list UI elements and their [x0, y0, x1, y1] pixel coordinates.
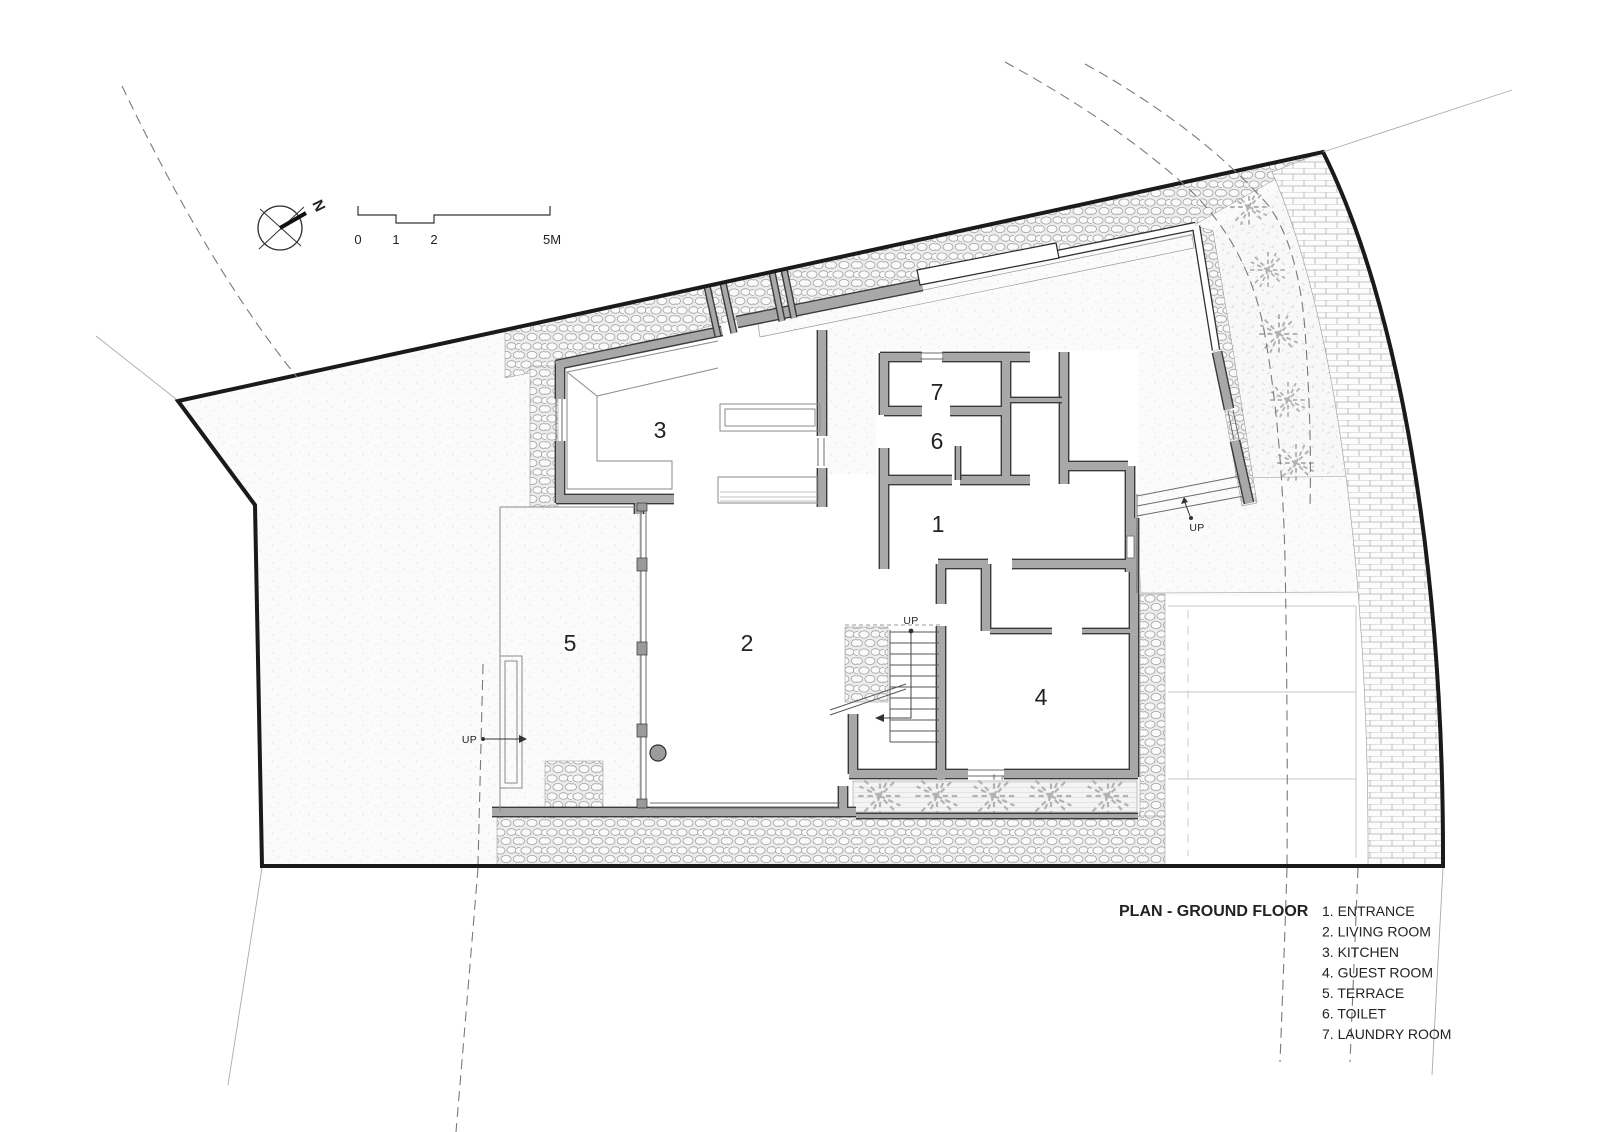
north-arrow: N	[258, 197, 328, 250]
legend-item-terrace: 5. TERRACE	[1322, 985, 1404, 1001]
room-label-living-room: 2	[741, 630, 754, 656]
legend-item-entrance: 1. ENTRANCE	[1322, 903, 1415, 919]
room-label-entrance: 1	[932, 511, 945, 537]
column	[650, 745, 666, 761]
legend: 1. ENTRANCE 2. LIVING ROOM 3. KITCHEN 4.…	[1322, 903, 1451, 1042]
room-label-laundry-room: 7	[931, 379, 944, 405]
up-label-entrance: UP	[1189, 522, 1204, 534]
up-label-stairs: UP	[903, 615, 918, 627]
scale-tick-1: 1	[392, 232, 399, 247]
floor-plan-drawing: N 0 1 2 5M 1 2 3 4 5 6 7 UP UP UP PLAN -…	[0, 0, 1600, 1132]
scale-tick-2: 2	[430, 232, 437, 247]
scale-bar: 0 1 2 5M	[354, 206, 561, 247]
legend-item-toilet: 6. TOILET	[1322, 1006, 1387, 1022]
room-label-terrace: 5	[564, 630, 577, 656]
title-block: PLAN - GROUND FLOOR	[1119, 903, 1309, 920]
legend-item-guest-room: 4. GUEST ROOM	[1322, 965, 1433, 981]
floor-plan-sheet: N 0 1 2 5M 1 2 3 4 5 6 7 UP UP UP PLAN -…	[0, 0, 1600, 1132]
up-label-terrace: UP	[462, 734, 477, 746]
scale-tick-3: 5M	[543, 232, 561, 247]
legend-item-laundry-room: 7. LAUNDRY ROOM	[1322, 1026, 1451, 1042]
scale-tick-0: 0	[354, 232, 361, 247]
room-label-toilet: 6	[931, 428, 944, 454]
north-label: N	[308, 197, 328, 214]
room-label-guest-room: 4	[1035, 684, 1048, 710]
planting-bed	[853, 774, 1137, 817]
legend-item-kitchen: 3. KITCHEN	[1322, 944, 1399, 960]
room-label-kitchen: 3	[654, 417, 667, 443]
plan-title: PLAN - GROUND FLOOR	[1119, 903, 1309, 920]
legend-item-living-room: 2. LIVING ROOM	[1322, 924, 1431, 940]
